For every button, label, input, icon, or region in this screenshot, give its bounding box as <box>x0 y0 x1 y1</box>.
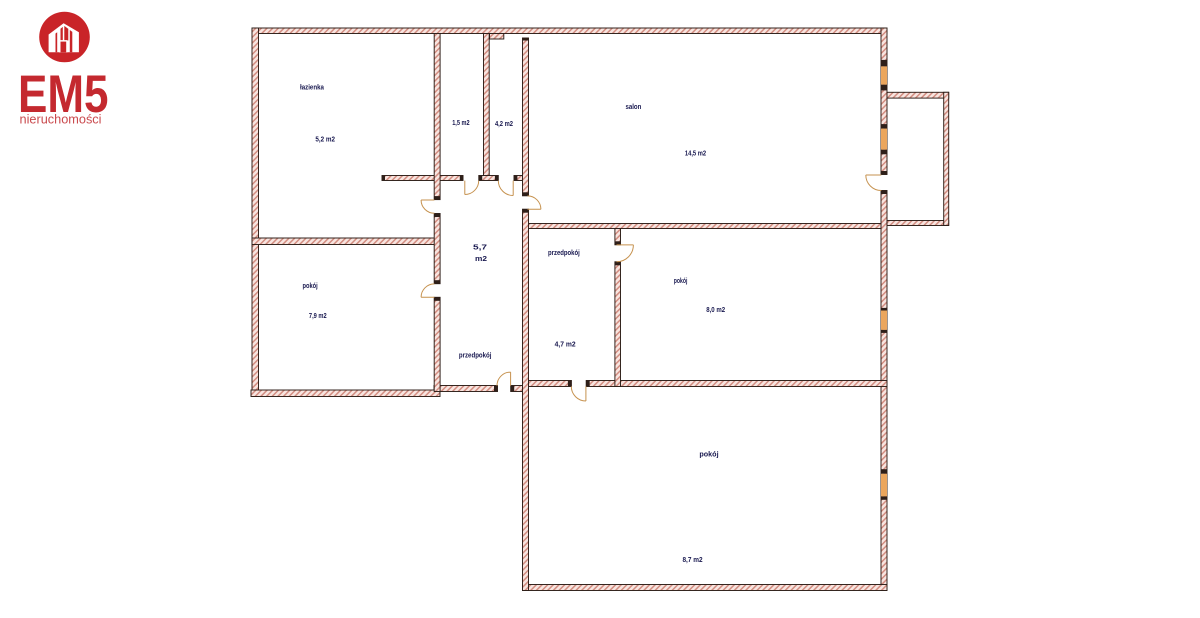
svg-text:pokój: pokój <box>303 283 318 290</box>
svg-text:5,2 m2: 5,2 m2 <box>315 137 335 144</box>
svg-text:przedpokój: przedpokój <box>459 353 492 360</box>
svg-text:m2: m2 <box>475 256 487 263</box>
svg-text:nieruchomości: nieruchomości <box>20 113 102 127</box>
svg-text:przedpokój: przedpokój <box>548 250 580 257</box>
svg-text:4,2 m2: 4,2 m2 <box>495 121 513 128</box>
svg-text:pokój: pokój <box>699 452 718 459</box>
svg-text:pokój: pokój <box>674 278 688 285</box>
svg-text:14,5 m2: 14,5 m2 <box>685 151 706 158</box>
svg-text:5,7: 5,7 <box>473 244 487 251</box>
svg-text:salon: salon <box>625 104 641 111</box>
svg-text:8,0 m2: 8,0 m2 <box>706 307 725 314</box>
svg-text:8,7 m2: 8,7 m2 <box>682 557 702 564</box>
svg-text:7,9 m2: 7,9 m2 <box>309 313 327 320</box>
svg-text:4,7 m2: 4,7 m2 <box>555 341 576 348</box>
svg-text:łazienka: łazienka <box>300 85 324 92</box>
svg-text:1,5 m2: 1,5 m2 <box>452 120 469 127</box>
